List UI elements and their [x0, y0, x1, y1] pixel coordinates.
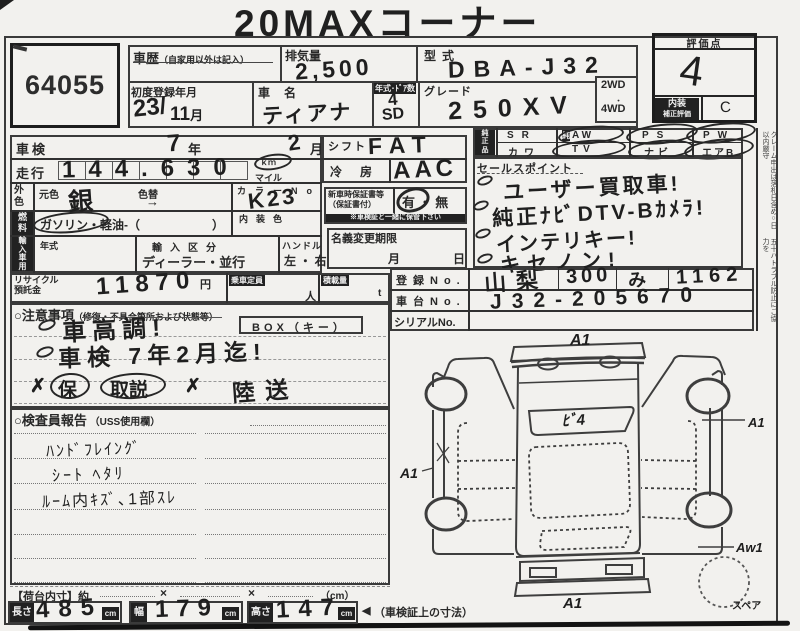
svg-text:A1: A1 [747, 415, 765, 430]
svg-text:スペア: スペア [732, 600, 761, 612]
svg-text:Aw1: Aw1 [735, 540, 763, 555]
svg-text:A1: A1 [569, 332, 591, 349]
svg-text:ﾋﾞ4: ﾋﾞ4 [561, 410, 586, 430]
svg-text:A1: A1 [399, 465, 418, 481]
svg-text:A1: A1 [562, 595, 582, 612]
